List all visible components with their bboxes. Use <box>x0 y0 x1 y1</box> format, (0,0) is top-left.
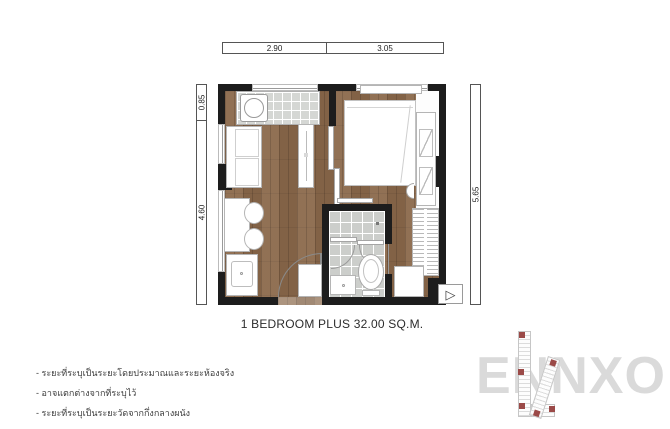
bathroom-wall <box>322 204 329 297</box>
ac-marker-icon: ▷ <box>446 288 456 301</box>
shelf-open-box <box>419 167 433 195</box>
site-core-marker <box>519 403 525 409</box>
dimension-right-cell: 5.65 <box>470 84 481 305</box>
wall-segment <box>318 84 356 91</box>
dimension-label: 2.90 <box>267 44 283 53</box>
site-core-marker <box>518 369 524 375</box>
site-core-marker <box>533 410 541 418</box>
shoe-cabinet <box>298 264 322 297</box>
closet-divider <box>424 209 427 275</box>
wall-segment <box>439 187 446 278</box>
wall-segment <box>439 84 446 156</box>
bedroom-sliding-track <box>337 198 373 203</box>
dimension-label: 5.65 <box>471 187 480 203</box>
dimension-label: 3.05 <box>377 44 393 53</box>
dimension-left-cell-1: 0.85 <box>196 84 207 121</box>
shelf-open-box <box>419 129 433 157</box>
window-ledge <box>360 85 422 94</box>
sink-basin-icon <box>244 98 264 118</box>
window <box>252 84 318 91</box>
toilet-icon <box>358 254 384 290</box>
disclaimer-notes: - ระยะที่ระบุเป็นระยะโดยประมาณและระยะห้อ… <box>36 363 234 423</box>
wall-segment <box>322 297 446 305</box>
floor-plan <box>218 84 446 305</box>
bed <box>344 100 416 186</box>
entrance-threshold <box>278 297 322 305</box>
dining-chair <box>244 202 264 224</box>
dining-chair <box>244 228 264 250</box>
site-core-marker <box>519 332 525 338</box>
bathroom-vanity <box>330 275 356 295</box>
bathroom-wall <box>385 204 392 244</box>
dimension-label: 0.85 <box>197 95 206 111</box>
floor-drain-icon <box>376 222 379 225</box>
mini-site-plan <box>505 328 595 426</box>
kitchen-lower-cabinet <box>226 254 258 296</box>
dimension-top-cell-2: 3.05 <box>326 42 444 54</box>
bathroom-door-line <box>388 244 389 274</box>
site-core-marker <box>549 359 557 367</box>
sliding-door-leaf <box>328 126 334 170</box>
shower-partition-leaf <box>330 237 357 242</box>
floor-plan-page: 2.90 3.05 0.85 4.60 5.65 <box>0 0 670 429</box>
bathroom-wall <box>322 204 392 211</box>
plan-title: 1 BEDROOM PLUS 32.00 SQ.M. <box>218 317 446 331</box>
wall-segment <box>218 297 278 305</box>
kitchen-sink-icon <box>240 94 268 122</box>
toilet-base <box>362 290 380 296</box>
note-line: - อาจแตกต่างจากที่ระบุไว้ <box>36 383 234 403</box>
vanity-drain-dot <box>342 284 345 287</box>
sofa <box>226 126 262 188</box>
wall-segment <box>218 84 225 124</box>
toilet-bowl <box>363 259 379 283</box>
dimension-top-cell-1: 2.90 <box>222 42 327 54</box>
bathroom-wall <box>385 274 392 297</box>
tv-console <box>298 124 314 188</box>
ac-ledge: ▷ <box>438 284 463 304</box>
sofa-cushion <box>235 129 259 157</box>
note-line: - ระยะที่ระบุเป็นระยะโดยประมาณและระยะห้อ… <box>36 363 234 383</box>
partition-wall <box>329 91 336 126</box>
dimension-label: 4.60 <box>197 205 206 221</box>
bedside-cabinet <box>416 112 436 206</box>
dimension-left-cell-2: 4.60 <box>196 120 207 305</box>
sofa-cushion <box>235 158 259 186</box>
tv-stand-dot <box>304 153 308 157</box>
bed-duvet-crease <box>400 105 410 183</box>
window <box>218 124 225 164</box>
site-core-marker <box>549 406 555 412</box>
drain-dot-icon <box>240 272 243 275</box>
washing-machine <box>394 266 424 297</box>
bed-pillow-line <box>347 107 413 108</box>
note-line: - ระยะที่ระบุเป็นระยะวัดจากกึ่งกลางผนัง <box>36 403 234 423</box>
